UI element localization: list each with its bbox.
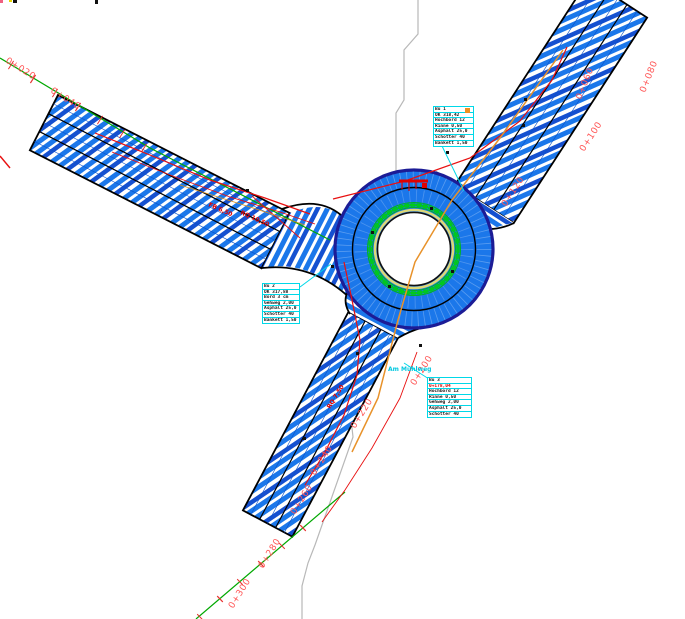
arm-south[interactable]: [243, 293, 421, 537]
roundabout[interactable]: [335, 170, 493, 328]
cad-drawing-canvas[interactable]: 0+020 0+040 0+120 0+100 0+060 0+080 0+20…: [0, 0, 685, 619]
station-label: 0+080: [639, 59, 661, 94]
annotation-marker-chip: [465, 108, 470, 113]
arm-northwest[interactable]: [30, 95, 355, 303]
sheet-edge-marks: [0, 0, 98, 4]
annotation-box-b[interactable]: Bü 2 OK 317,88 Bord 3 cm Gehweg 2,00 Asp…: [262, 283, 300, 324]
annotation-box-c[interactable]: Bü 3 0+178,04 Hochbord 12 Rinne 0,50 Geh…: [427, 377, 472, 418]
station-label: 0+100: [578, 120, 605, 154]
central-island: [378, 213, 451, 286]
annotation-line: Bankett 1,50: [263, 318, 299, 324]
station-label: 0+280: [257, 537, 283, 571]
annotation-line: Schotter 40: [428, 412, 471, 418]
annotation-line: Bankett 1,50: [434, 141, 473, 147]
site-plan-svg: 0+020 0+040 0+120 0+100 0+060 0+080 0+20…: [0, 0, 685, 619]
station-label: 0+020: [3, 56, 37, 82]
